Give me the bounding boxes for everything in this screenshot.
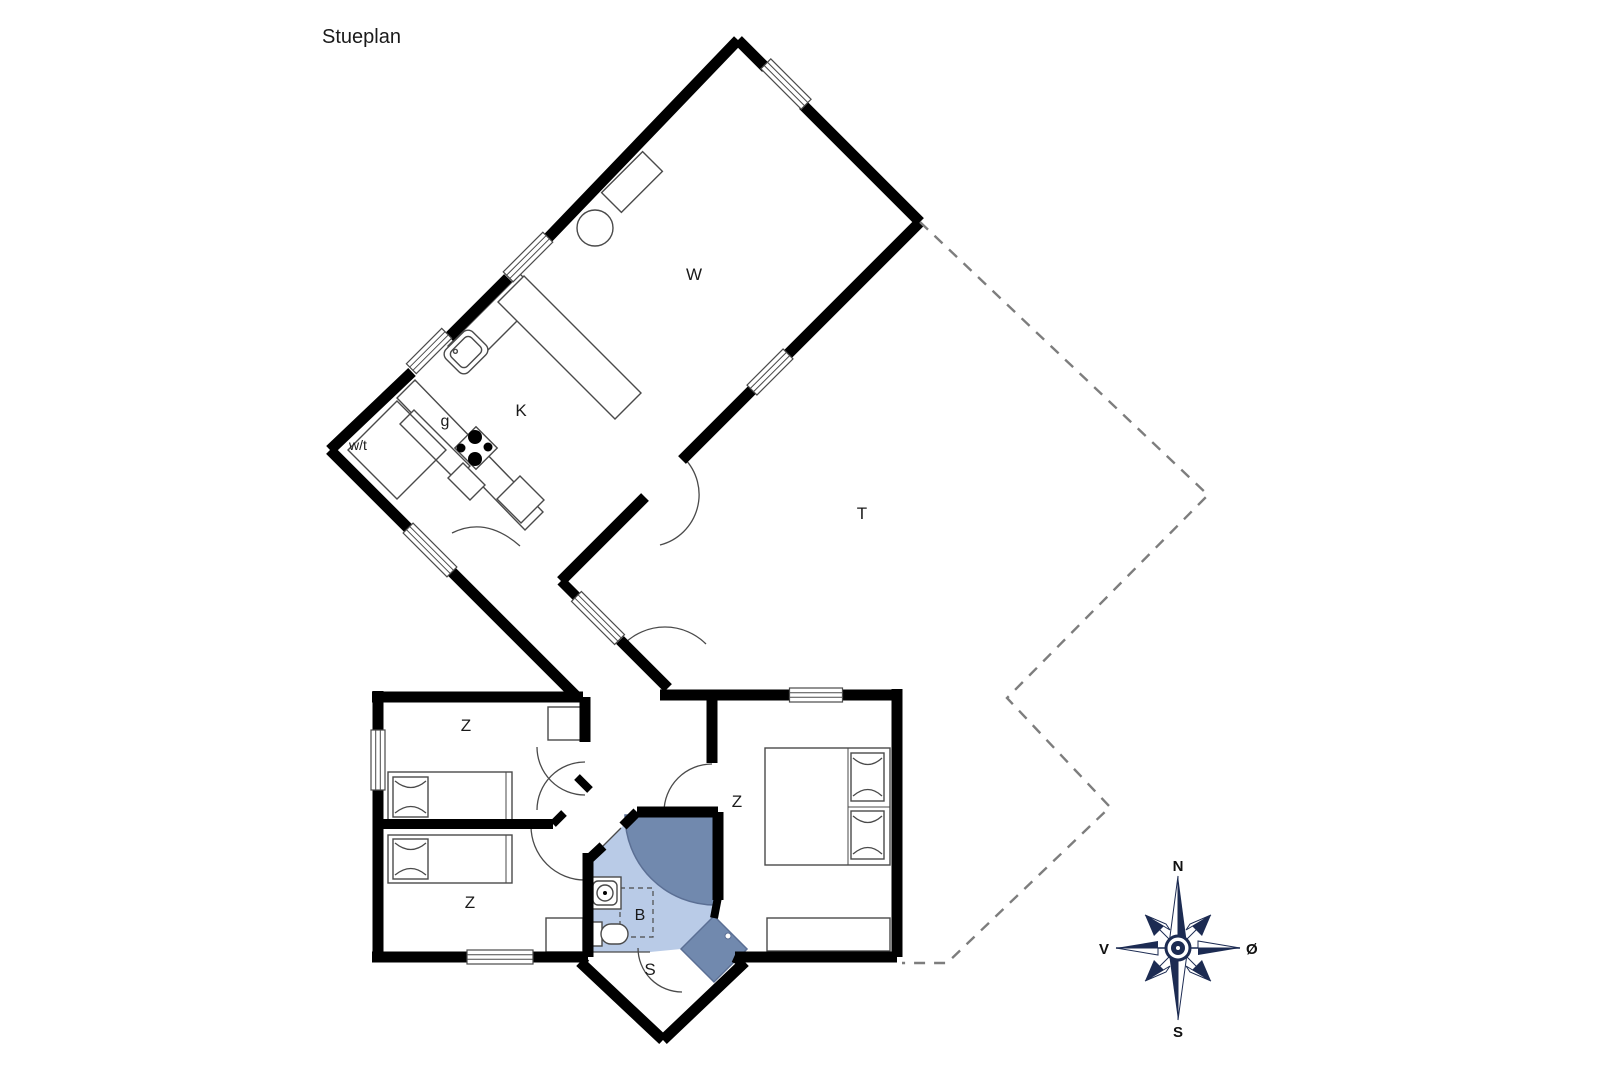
hall-door-arc: [624, 627, 706, 644]
terrace-door-arc: [660, 458, 699, 545]
window-bedroom3: [790, 688, 843, 702]
room-label-living: W: [686, 265, 702, 284]
compass-east-label: Ø: [1246, 941, 1258, 958]
wardrobe-2: [546, 918, 583, 952]
room-label-bathroom: B: [635, 907, 646, 924]
compass-north-label: N: [1173, 858, 1184, 875]
kitchen-fixtures: [348, 152, 662, 530]
room-label-bedroom3: Z: [732, 792, 742, 811]
dining-table: [577, 210, 613, 246]
window-bedroom1: [371, 730, 385, 790]
bathroom-sink: [589, 877, 621, 909]
bedroom3-door-arc: [664, 764, 712, 812]
window-corridor: [571, 591, 624, 644]
bedroom1-door-arc: [537, 747, 585, 795]
terrace-outline: [902, 222, 1208, 963]
window-utility-sw: [403, 523, 457, 577]
room-label-bedroom2: Z: [465, 893, 475, 912]
room-label-terrace: T: [857, 504, 867, 523]
sideboard: [602, 152, 663, 213]
wardrobe-3: [767, 918, 890, 951]
window-bedroom2: [467, 950, 533, 964]
toilet: [590, 922, 628, 946]
room-label-pantry: g: [441, 413, 450, 430]
island-counter: [498, 276, 641, 419]
page-title: Stueplan: [322, 26, 401, 48]
bedroom1-door-arc2: [537, 762, 585, 810]
window-kitchen-nw1: [503, 232, 552, 281]
compass-west-label: V: [1099, 941, 1109, 958]
kitchen-door-arc: [452, 527, 520, 546]
room-label-entry: S: [644, 960, 655, 979]
wardrobe-1: [548, 707, 583, 740]
room-label-bedroom1: Z: [461, 716, 471, 735]
floor-plan-svg: N S V Ø Stueplan W K g w/t T Z Z Z B S: [0, 0, 1600, 1067]
room-label-kitchen: K: [515, 401, 527, 420]
window-living-se: [747, 349, 793, 395]
window-living-ne: [761, 59, 811, 109]
room-label-utility: w/t: [348, 437, 367, 453]
floor-plan-page: N S V Ø Stueplan W K g w/t T Z Z Z B S: [0, 0, 1600, 1067]
bedroom2-door-arc: [531, 826, 585, 880]
compass-south-label: S: [1173, 1024, 1183, 1041]
compass-rose: N S V Ø: [1099, 858, 1258, 1041]
